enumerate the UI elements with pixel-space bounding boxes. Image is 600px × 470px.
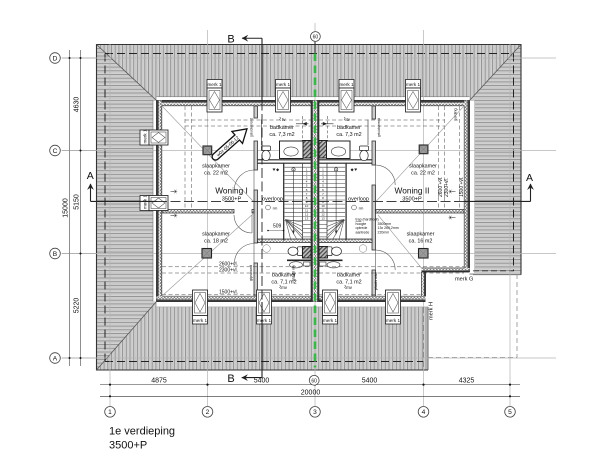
svg-text:A: A — [53, 355, 58, 362]
svg-text:ca. 22 m2: ca. 22 m2 — [204, 171, 228, 177]
svg-text:merk 1: merk 1 — [257, 318, 271, 323]
svg-text:plaats wtw: plaats wtw — [374, 272, 378, 290]
svg-text:rm: rm — [273, 206, 278, 211]
svg-text:2300+vl.: 2300+vl. — [444, 178, 450, 197]
svg-text:mv: mv — [346, 285, 353, 290]
svg-text:mv: mv — [281, 285, 288, 290]
svg-text:merk 1: merk 1 — [323, 318, 337, 323]
svg-text:A: A — [87, 170, 94, 182]
svg-text:overloop: overloop — [262, 197, 283, 203]
svg-text:slaapkamer: slaapkamer — [202, 164, 230, 170]
svg-text:60: 60 — [313, 35, 319, 41]
svg-text:5220: 5220 — [73, 298, 80, 314]
svg-text:3500+P: 3500+P — [402, 197, 422, 203]
svg-text:15000: 15000 — [62, 198, 69, 218]
svg-text:509: 509 — [273, 224, 282, 230]
svg-text:geluidwerend: geluidwerend — [249, 118, 253, 137]
svg-text:ca. 7,3 m2: ca. 7,3 m2 — [269, 132, 294, 138]
svg-text:20000: 20000 — [301, 389, 321, 396]
svg-text:B: B — [227, 33, 234, 45]
svg-text:B: B — [53, 251, 58, 258]
svg-text:ca. 16 m2: ca. 16 m2 — [409, 239, 433, 245]
svg-text:2300+vl.: 2300+vl. — [219, 268, 238, 274]
svg-text:plaats mv: plaats mv — [292, 265, 296, 281]
svg-text:slaapkamer: slaapkamer — [409, 164, 437, 170]
svg-text:1: 1 — [108, 409, 112, 416]
svg-text:5400: 5400 — [362, 378, 378, 385]
svg-text:1500+vl.: 1500+vl. — [219, 289, 238, 295]
svg-text:merk 1: merk 1 — [143, 129, 148, 143]
svg-text:60: 60 — [311, 379, 317, 385]
svg-text:13: 13 — [305, 217, 309, 221]
svg-text:merk 1: merk 1 — [339, 82, 353, 87]
svg-text:geluidwerend: geluidwerend — [377, 118, 381, 137]
svg-text:badkamer: badkamer — [270, 125, 294, 131]
svg-text:5150: 5150 — [73, 194, 80, 210]
svg-text:3: 3 — [313, 409, 317, 416]
svg-text:slaapkamer: slaapkamer — [202, 232, 230, 238]
svg-text:merk 1: merk 1 — [193, 318, 207, 323]
svg-text:aantrede: aantrede — [356, 230, 370, 234]
svg-text:badkamer: badkamer — [337, 125, 361, 131]
svg-text:D: D — [53, 55, 58, 62]
svg-text:Woning I: Woning I — [215, 186, 248, 196]
svg-text:5400: 5400 — [254, 378, 270, 385]
svg-text:4: 4 — [422, 409, 426, 416]
svg-text:gipswand: gipswand — [249, 265, 253, 281]
svg-text:C: C — [53, 148, 58, 155]
svg-text:4325: 4325 — [459, 378, 475, 385]
svg-text:3500+P: 3500+P — [222, 197, 242, 203]
svg-text:ca. 18 m2: ca. 18 m2 — [204, 239, 228, 245]
svg-text:overloop: overloop — [348, 197, 369, 203]
svg-text:merk 1: merk 1 — [207, 82, 221, 87]
svg-text:merk 1: merk 1 — [406, 82, 420, 87]
svg-text:2: 2 — [206, 409, 210, 416]
svg-text:rm: rm — [359, 206, 364, 211]
svg-text:1e verdieping: 1e verdieping — [109, 426, 175, 438]
svg-text:ca. 7,3 m2: ca. 7,3 m2 — [336, 132, 361, 138]
svg-text:2600+vl.: 2600+vl. — [219, 261, 238, 267]
svg-text:220mm: 220mm — [378, 230, 390, 234]
svg-text:Woning II: Woning II — [395, 186, 430, 196]
svg-text:5: 5 — [508, 409, 512, 416]
svg-text:ca. 22 m2: ca. 22 m2 — [411, 171, 435, 177]
svg-text:B: B — [227, 373, 234, 385]
svg-text:merk 1: merk 1 — [386, 318, 400, 323]
svg-text:1500 +vl.: 1500 +vl. — [459, 177, 465, 197]
svg-text:slaapkamer: slaapkamer — [407, 232, 435, 238]
svg-text:13: 13 — [321, 217, 325, 221]
svg-text:A: A — [526, 172, 533, 184]
svg-text:merk H: merk H — [429, 302, 435, 320]
svg-text:merk G: merk G — [455, 277, 473, 283]
svg-text:merk 1: merk 1 — [276, 82, 290, 87]
svg-text:badkamer: badkamer — [337, 273, 361, 279]
svg-text:4630: 4630 — [73, 97, 80, 113]
svg-text:3500+P: 3500+P — [109, 440, 147, 452]
svg-text:4875: 4875 — [151, 378, 167, 385]
svg-text:gording: gording — [454, 108, 458, 121]
